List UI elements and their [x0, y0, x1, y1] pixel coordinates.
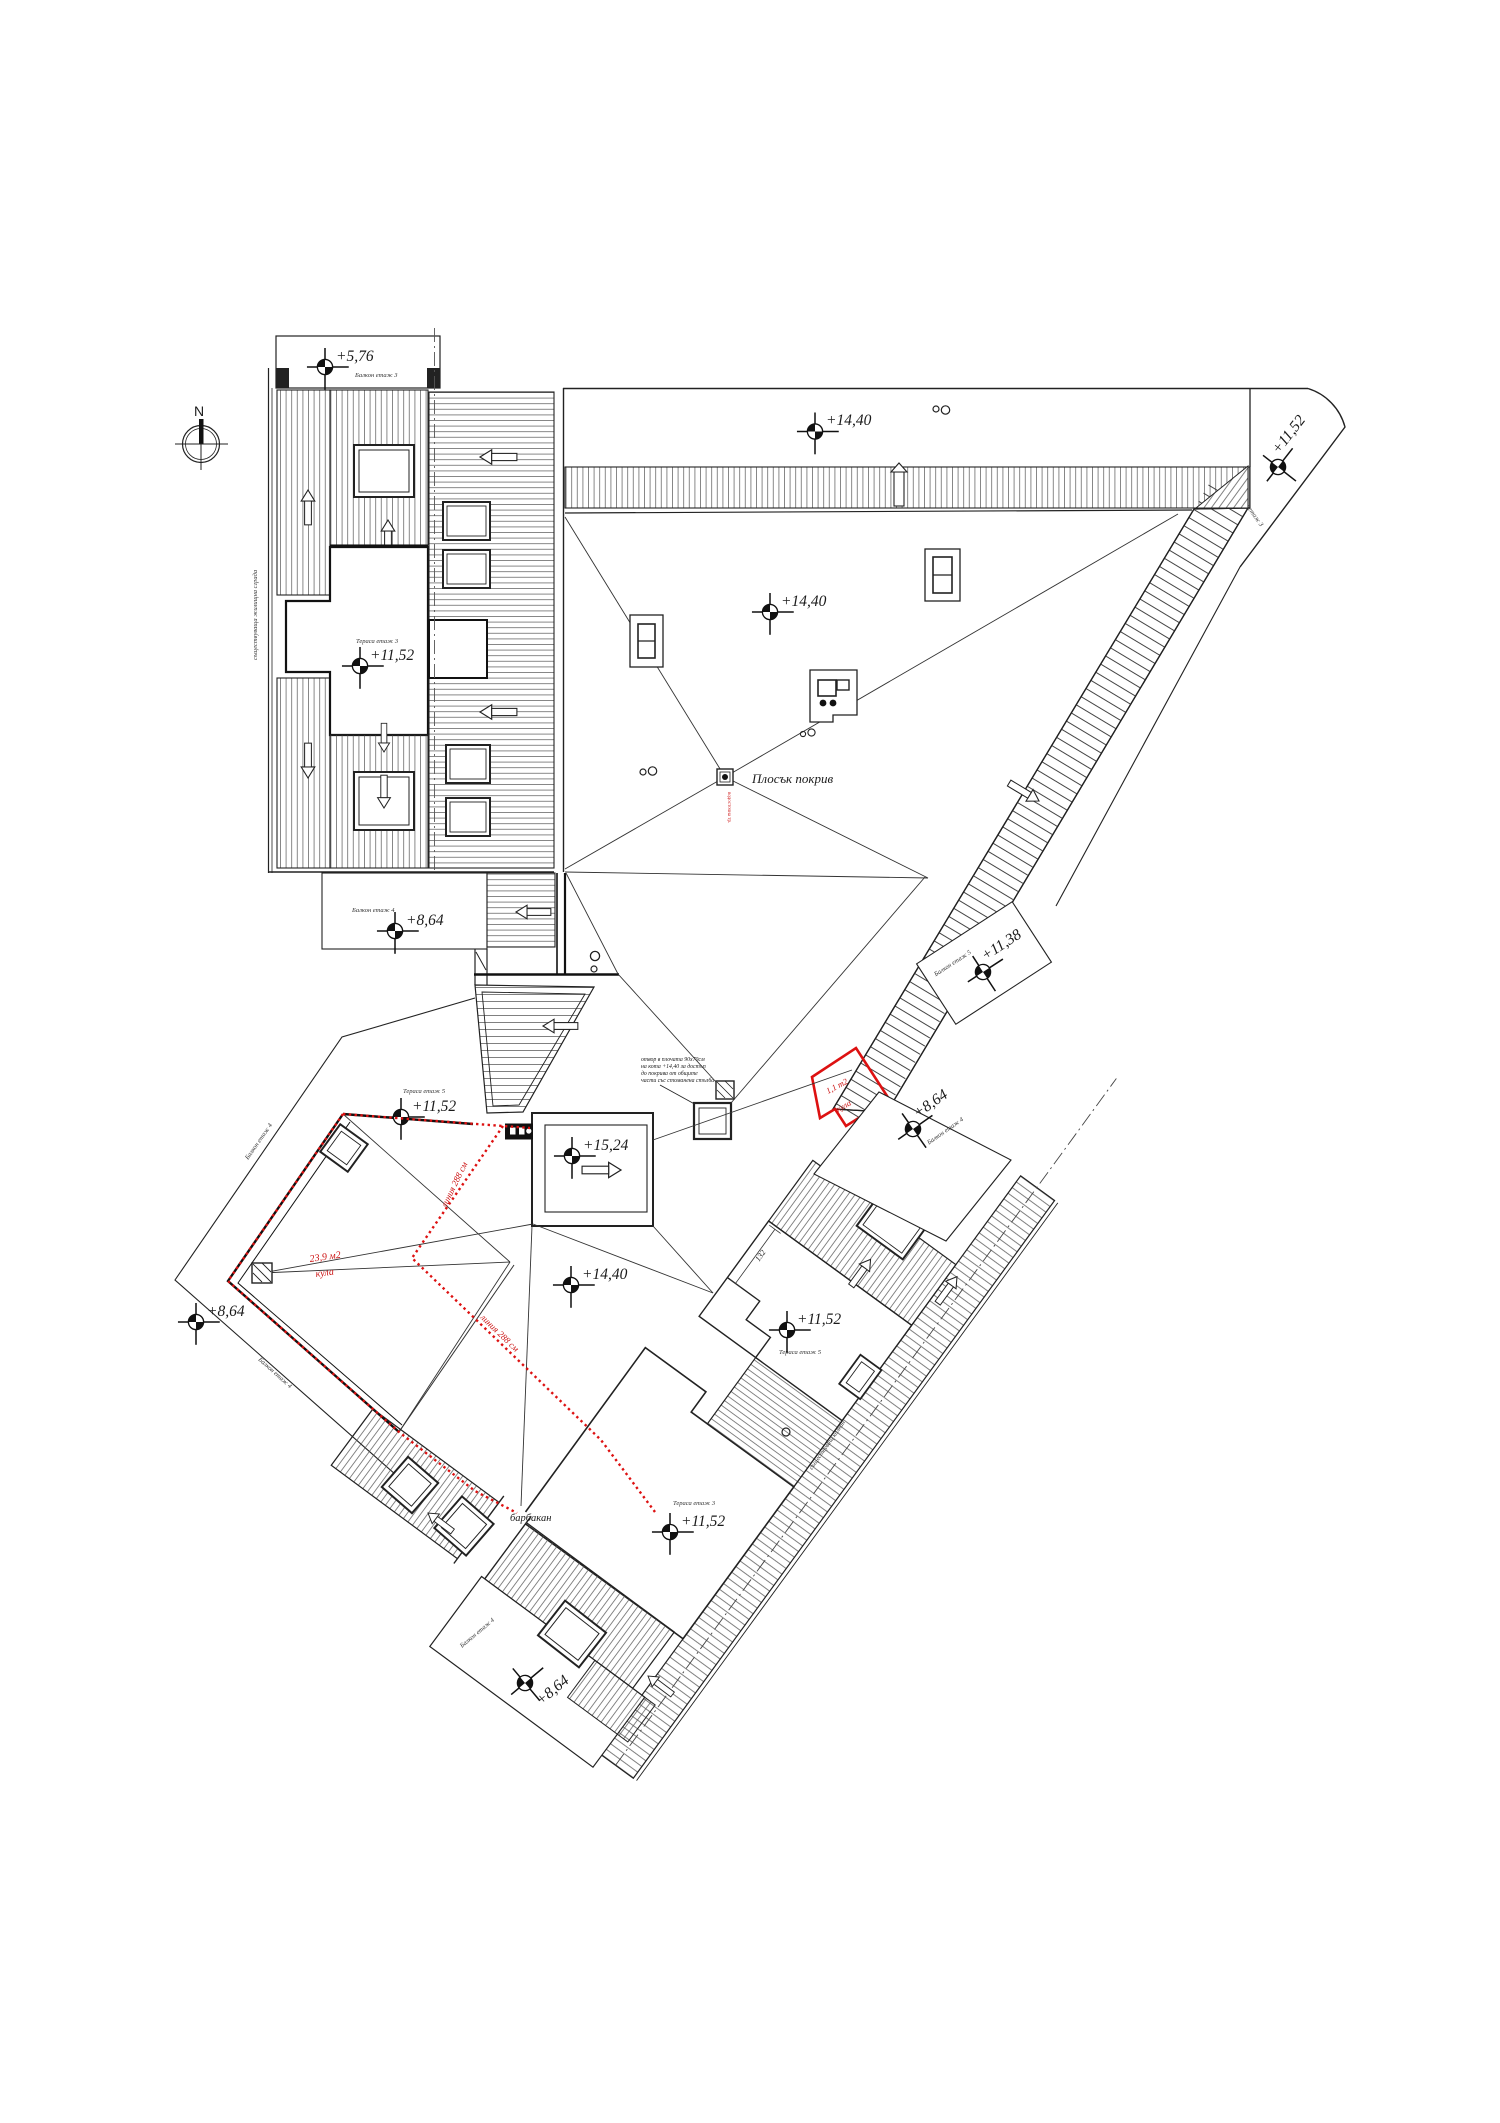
svg-text:Балкон етаж 3: Балкон етаж 3 [354, 372, 398, 379]
svg-text:+11,52: +11,52 [370, 647, 414, 664]
svg-text:на кота +14,40 за достъп: на кота +14,40 за достъп [641, 1063, 706, 1070]
svg-text:водосточна тр.: водосточна тр. [726, 792, 731, 823]
svg-text:Балкон етаж 4: Балкон етаж 4 [351, 907, 395, 914]
svg-text:Плосък покрив: Плосък покрив [751, 771, 833, 786]
svg-text:+8,64: +8,64 [406, 912, 444, 929]
svg-text:+14,40: +14,40 [781, 593, 827, 610]
svg-text:+8,64: +8,64 [207, 1303, 245, 1320]
svg-text:+5,76: +5,76 [336, 348, 374, 365]
svg-text:+11,52: +11,52 [797, 1311, 841, 1328]
svg-text:съществуваща жилищна сграда: съществуваща жилищна сграда [252, 570, 259, 660]
svg-text:Тераса етаж 3: Тераса етаж 3 [673, 1500, 716, 1507]
svg-text:Тераса етаж 5: Тераса етаж 5 [779, 1349, 822, 1356]
svg-text:+11,52: +11,52 [412, 1098, 456, 1115]
svg-text:до покрива от общите: до покрива от общите [641, 1070, 698, 1077]
svg-text:части със стоманена стълба: части със стоманена стълба [641, 1077, 714, 1084]
svg-text:+14,40: +14,40 [826, 412, 872, 429]
svg-text:+11,52: +11,52 [681, 1513, 725, 1530]
svg-text:Тераса етаж 5: Тераса етаж 5 [403, 1088, 446, 1095]
svg-text:+14,40: +14,40 [582, 1266, 628, 1283]
svg-text:+15,24: +15,24 [583, 1137, 629, 1154]
svg-text:отвор в плочата 90х70см: отвор в плочата 90х70см [641, 1057, 705, 1063]
svg-text:N: N [194, 403, 204, 419]
svg-text:барбакан: барбакан [510, 1513, 551, 1524]
svg-text:Тераса етаж 3: Тераса етаж 3 [356, 638, 399, 645]
